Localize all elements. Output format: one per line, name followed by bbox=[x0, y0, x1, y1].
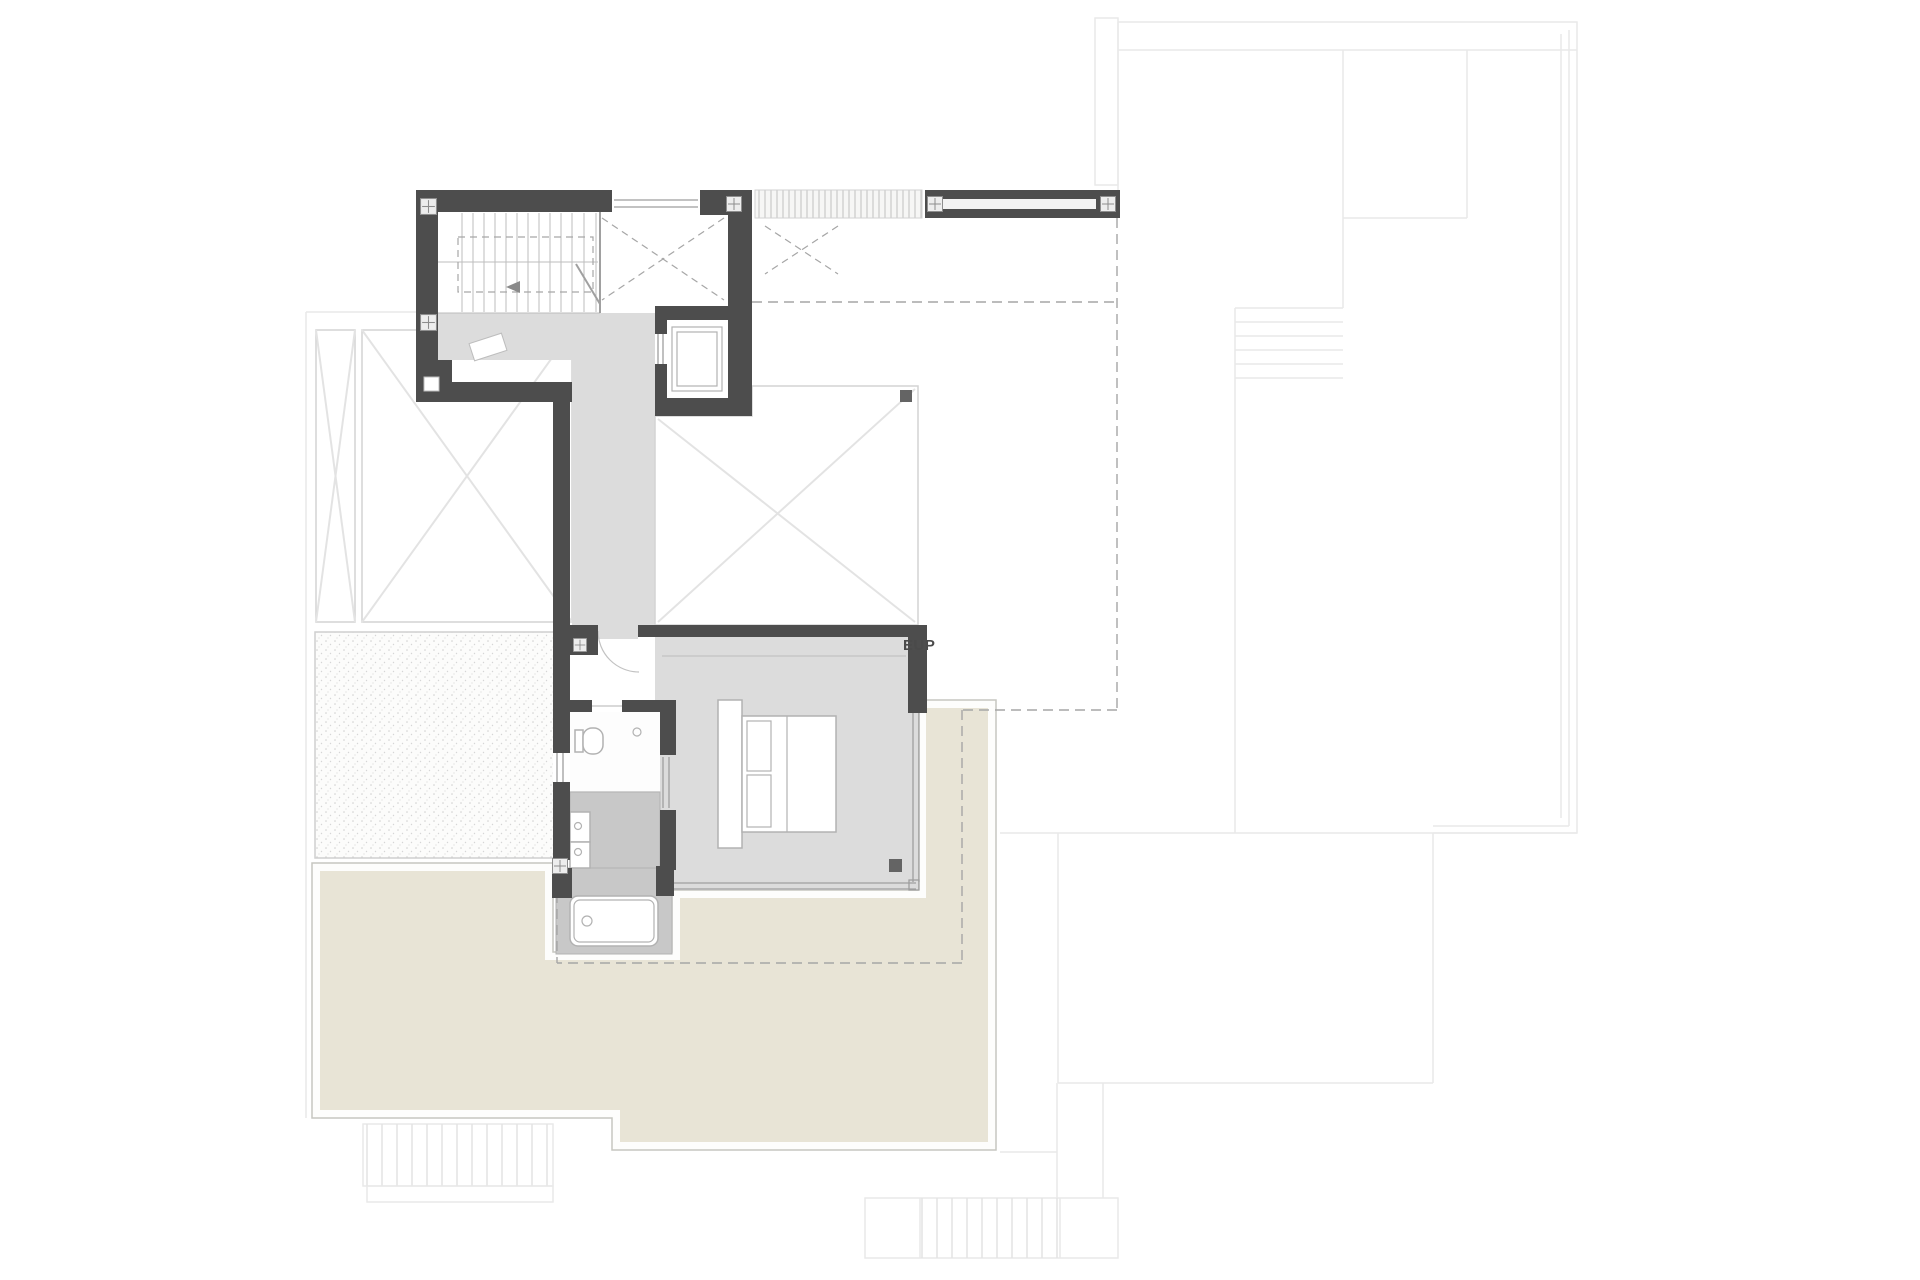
column-icon bbox=[727, 197, 742, 212]
elevator bbox=[667, 320, 728, 398]
pergola-slats bbox=[755, 190, 922, 218]
floor-drain-marker bbox=[889, 859, 902, 872]
void-strip bbox=[316, 330, 355, 622]
roof-beam bbox=[925, 190, 1120, 218]
void-room-left bbox=[362, 330, 572, 622]
watermark-text: EUP bbox=[903, 637, 935, 654]
toilet bbox=[575, 728, 603, 754]
column-icon bbox=[1101, 197, 1116, 212]
column-icon bbox=[421, 315, 437, 331]
window-west bbox=[553, 753, 570, 782]
column-icon bbox=[553, 859, 568, 874]
column-icon bbox=[573, 638, 586, 651]
floor-plan-canvas: EUP bbox=[0, 0, 1920, 1280]
wall-niche bbox=[424, 377, 439, 391]
headboard bbox=[718, 700, 742, 848]
bathtub bbox=[570, 896, 658, 946]
column-icon bbox=[928, 197, 943, 212]
bathroom bbox=[556, 712, 672, 954]
column-icon bbox=[421, 199, 437, 215]
bed bbox=[718, 700, 836, 848]
staircase bbox=[438, 212, 728, 313]
washbasin bbox=[570, 812, 590, 868]
gravel-roof bbox=[315, 632, 555, 858]
void-room-center bbox=[655, 386, 918, 625]
roof-drain-marker bbox=[900, 390, 912, 402]
